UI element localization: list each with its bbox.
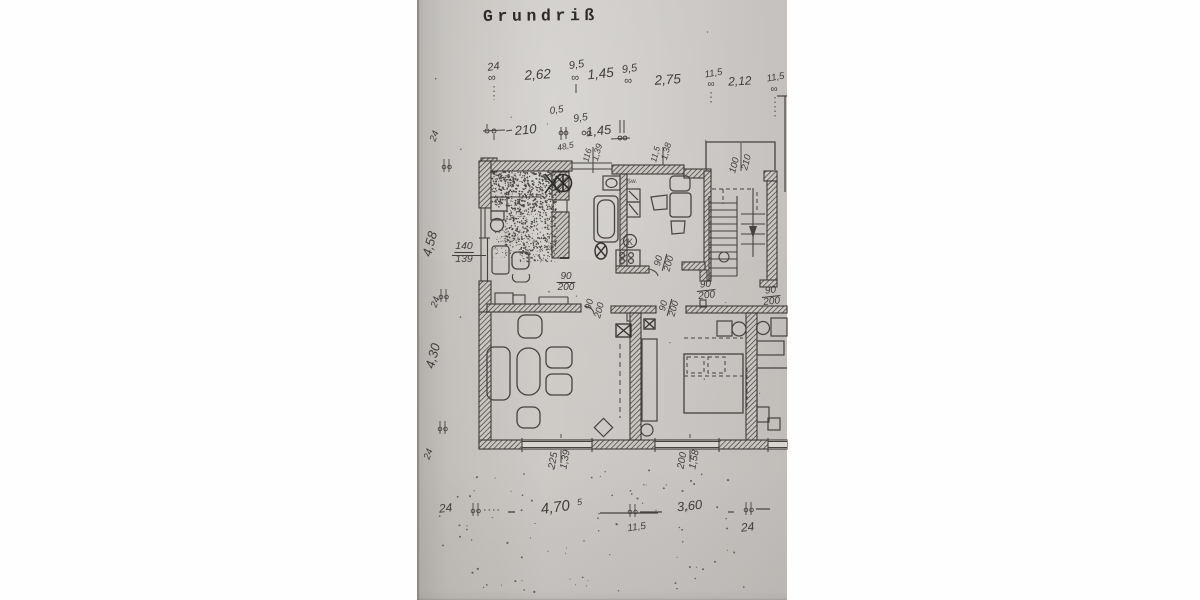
svg-text:90: 90	[764, 284, 777, 296]
svg-text:2,12: 2,12	[727, 73, 752, 88]
svg-text:1,45: 1,45	[587, 65, 615, 83]
svg-text:9,5: 9,5	[621, 62, 639, 76]
svg-text:200: 200	[762, 295, 781, 308]
svg-text:140: 140	[455, 240, 473, 252]
svg-text:1,45: 1,45	[585, 122, 612, 140]
svg-text:Grundriß: Grundriß	[483, 6, 599, 26]
svg-text:∞: ∞	[707, 79, 714, 90]
svg-text:K: K	[627, 237, 633, 247]
svg-text:2,62: 2,62	[523, 66, 552, 83]
svg-text:3,60: 3,60	[676, 497, 703, 515]
svg-text:24: 24	[437, 500, 453, 515]
svg-text:∞: ∞	[624, 75, 632, 87]
svg-text:0,5: 0,5	[549, 104, 565, 117]
svg-text:90: 90	[560, 271, 572, 282]
svg-text:∞: ∞	[770, 84, 777, 95]
svg-text:139: 139	[455, 253, 473, 265]
svg-text:200: 200	[557, 282, 575, 293]
svg-text:Sw.: Sw.	[626, 178, 637, 186]
svg-text:9,5: 9,5	[573, 111, 589, 125]
svg-text:24: 24	[739, 519, 755, 534]
svg-text:∞: ∞	[487, 72, 496, 85]
svg-text:∞: ∞	[571, 72, 579, 84]
svg-text:9,5: 9,5	[568, 58, 586, 72]
svg-text:2,75: 2,75	[653, 71, 682, 88]
svg-text:210: 210	[513, 121, 538, 138]
